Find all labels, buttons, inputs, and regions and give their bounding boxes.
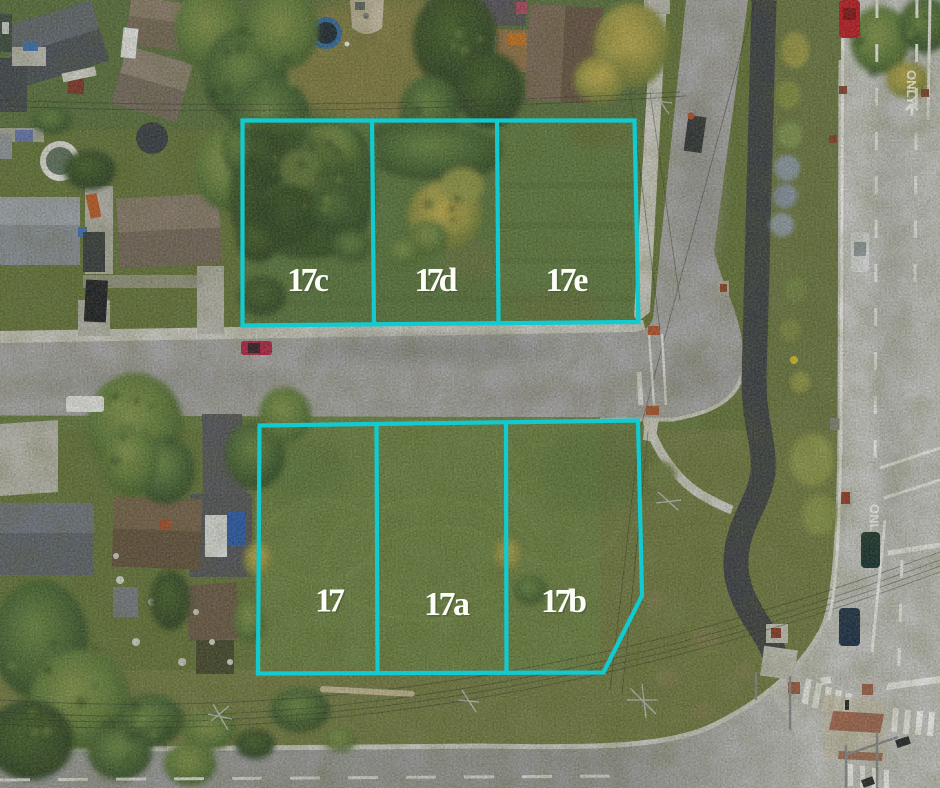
svg-text:17c: 17c [287, 262, 329, 299]
svg-text:17e: 17e [546, 262, 589, 299]
svg-text:17: 17 [315, 583, 345, 620]
svg-text:17d: 17d [415, 262, 458, 299]
svg-text:17a: 17a [424, 586, 470, 623]
svg-text:17b: 17b [541, 583, 587, 620]
